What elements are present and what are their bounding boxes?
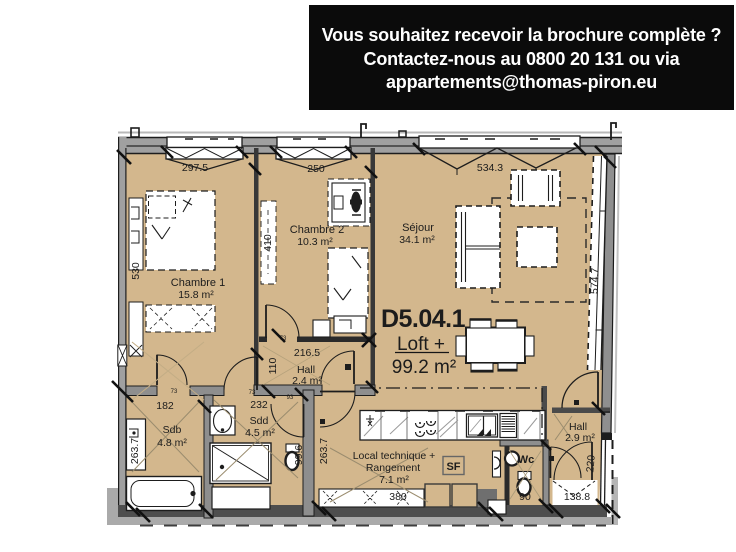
svg-text:34.1 m²: 34.1 m² (399, 234, 435, 246)
svg-text:410: 410 (262, 234, 274, 252)
svg-text:4.5 m²: 4.5 m² (245, 427, 275, 439)
svg-text:2.4 m²: 2.4 m² (292, 375, 322, 387)
svg-text:Local technique +: Local technique + (353, 450, 436, 462)
svg-text:182: 182 (156, 400, 174, 412)
svg-text:73: 73 (249, 390, 256, 396)
svg-text:138.8: 138.8 (564, 491, 590, 503)
svg-text:297.5: 297.5 (182, 162, 208, 174)
svg-text:7.1 m²: 7.1 m² (379, 474, 409, 486)
svg-text:380: 380 (389, 491, 407, 503)
svg-text:73: 73 (171, 389, 178, 395)
svg-text:220: 220 (584, 454, 597, 473)
svg-text:263.7: 263.7 (318, 438, 330, 464)
svg-text:534.3: 534.3 (477, 162, 503, 174)
svg-text:Rangement: Rangement (366, 462, 420, 474)
svg-text:D5.04.1: D5.04.1 (381, 305, 466, 333)
svg-text:216.5: 216.5 (294, 347, 320, 359)
svg-text:574.7: 574.7 (589, 267, 602, 294)
svg-text:99.6: 99.6 (293, 445, 305, 466)
svg-text:Sdb: Sdb (163, 424, 182, 436)
svg-text:10.3 m²: 10.3 m² (297, 236, 333, 248)
svg-text:Wc: Wc (518, 454, 535, 466)
svg-text:15.8 m²: 15.8 m² (178, 289, 214, 301)
svg-text:Chambre 1: Chambre 1 (171, 277, 225, 289)
svg-text:250: 250 (307, 163, 325, 175)
svg-text:530: 530 (130, 262, 142, 280)
svg-text:93: 93 (287, 395, 294, 401)
svg-text:Sdd: Sdd (250, 415, 269, 427)
svg-text:Séjour: Séjour (402, 222, 434, 234)
svg-text:99.2 m²: 99.2 m² (392, 357, 456, 378)
svg-text:2.9 m²: 2.9 m² (565, 432, 595, 444)
svg-text:4.8 m²: 4.8 m² (157, 437, 187, 449)
svg-text:90: 90 (519, 491, 531, 503)
svg-text:110: 110 (267, 357, 279, 374)
svg-text:232: 232 (250, 399, 268, 411)
svg-text:Chambre 2: Chambre 2 (290, 224, 344, 236)
svg-text:263.7: 263.7 (129, 438, 141, 464)
svg-text:SF: SF (446, 461, 460, 473)
svg-text:Loft +: Loft + (397, 334, 445, 355)
